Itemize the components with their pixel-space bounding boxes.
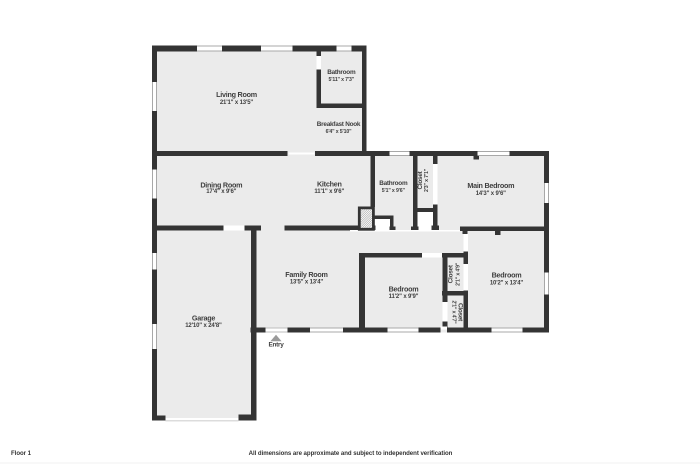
svg-text:Family Room: Family Room <box>285 270 327 279</box>
svg-text:11'2" x 9'9": 11'2" x 9'9" <box>389 294 419 300</box>
svg-text:6'4" x 5'10": 6'4" x 5'10" <box>326 129 352 135</box>
svg-text:5'1" x 9'6": 5'1" x 9'6" <box>382 188 406 194</box>
svg-text:11'1" x 9'6": 11'1" x 9'6" <box>314 189 344 195</box>
svg-text:2'3" x 7'1": 2'3" x 7'1" <box>424 168 430 192</box>
svg-text:12'10" x 24'8": 12'10" x 24'8" <box>185 323 222 329</box>
svg-text:21'1" x 13'5": 21'1" x 13'5" <box>220 100 254 106</box>
svg-text:Closet: Closet <box>417 170 424 189</box>
svg-text:All dimensions are approximate: All dimensions are approximate and subje… <box>249 450 453 457</box>
svg-text:5'11" x 7'3": 5'11" x 7'3" <box>329 77 355 83</box>
svg-text:Garage: Garage <box>192 313 216 322</box>
svg-text:Bathroom: Bathroom <box>327 69 356 76</box>
svg-text:Bedroom: Bedroom <box>492 270 522 279</box>
svg-text:14'3" x 9'6": 14'3" x 9'6" <box>476 191 506 197</box>
svg-text:Entry: Entry <box>268 341 284 348</box>
svg-text:10'2" x 13'4": 10'2" x 13'4" <box>490 280 524 286</box>
svg-text:17'4" x 9'6": 17'4" x 9'6" <box>206 189 236 195</box>
svg-text:Breakfast Nook: Breakfast Nook <box>317 121 361 128</box>
svg-text:Dining Room: Dining Room <box>200 180 242 189</box>
svg-text:Bathroom: Bathroom <box>379 180 408 187</box>
svg-text:2'1" x 4'7": 2'1" x 4'7" <box>450 300 456 324</box>
svg-text:Living Room: Living Room <box>216 90 257 99</box>
svg-text:Floor 1: Floor 1 <box>11 450 32 457</box>
svg-text:Kitchen: Kitchen <box>317 179 342 188</box>
svg-text:Main Bedroom: Main Bedroom <box>467 181 514 190</box>
svg-text:Closet: Closet <box>456 303 463 322</box>
svg-text:Closet: Closet <box>448 264 455 283</box>
svg-text:Bedroom: Bedroom <box>389 284 419 293</box>
svg-text:13'5" x 13'4": 13'5" x 13'4" <box>290 280 324 286</box>
svg-text:2'1" x 4'9": 2'1" x 4'9" <box>456 262 462 286</box>
